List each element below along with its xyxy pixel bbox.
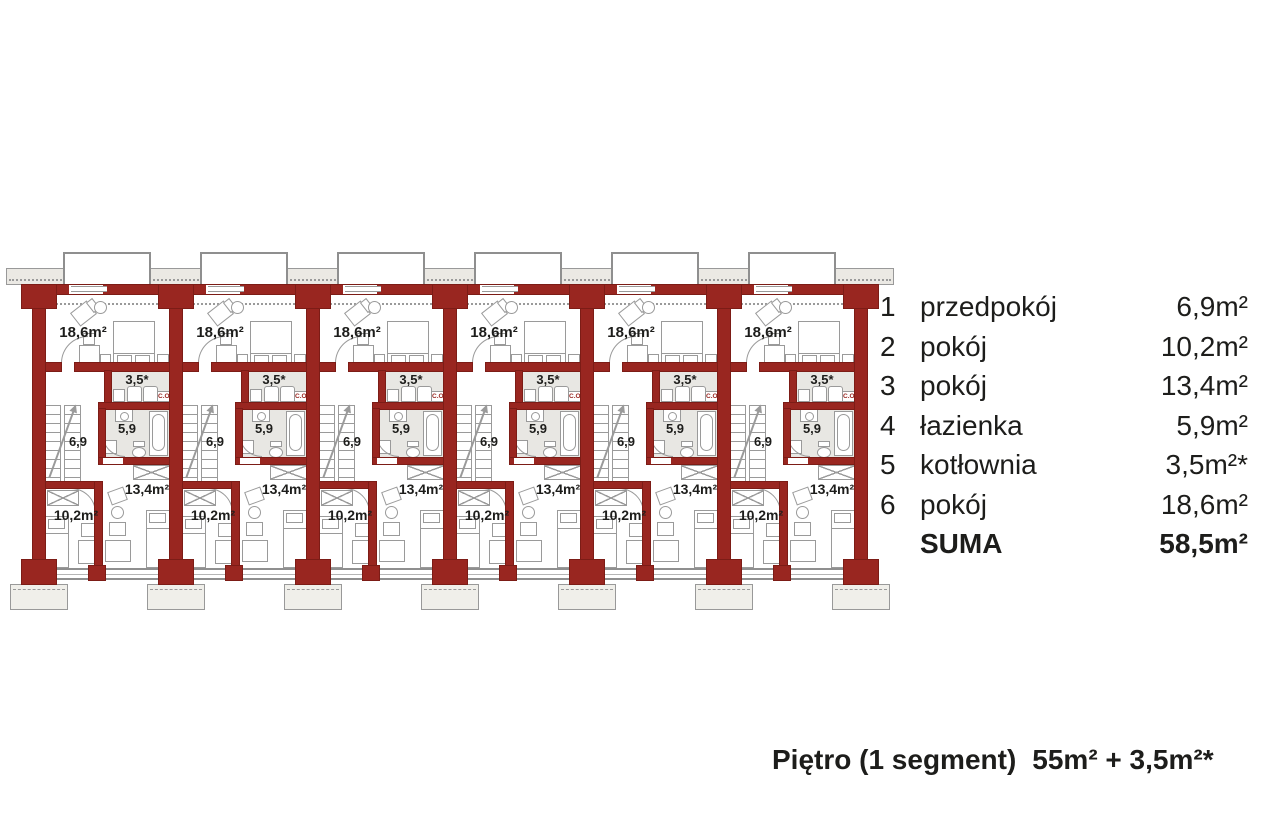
wardrobe [407, 465, 444, 480]
door-gap [103, 458, 123, 464]
chair [246, 522, 263, 536]
wall-top [319, 285, 444, 294]
bed-blanket-line [831, 528, 855, 529]
wall-top [730, 285, 855, 294]
washer [127, 386, 142, 402]
window-band [593, 568, 718, 580]
desk [516, 540, 542, 562]
boiler-fixture [661, 389, 673, 402]
wall-hall-bottom [730, 482, 782, 488]
roof-overhang-dotted-line [45, 303, 170, 305]
room-label-3-5: 3,5* [794, 373, 850, 386]
window-band [456, 568, 581, 580]
party-wall [718, 285, 730, 582]
toilet-bowl [406, 447, 420, 458]
wall-pilaster-bottom [570, 560, 604, 584]
toilet-bowl [269, 447, 283, 458]
room-label-6-9: 6,9 [63, 435, 93, 448]
stool-circle [385, 506, 398, 519]
wall-pier [226, 566, 242, 580]
wall-pilaster-top [22, 285, 56, 308]
bed-pillow [423, 513, 440, 523]
desk [105, 540, 131, 562]
stool-circle [111, 506, 124, 519]
chair-circle [505, 301, 518, 314]
wall-room-divider [349, 363, 444, 371]
wardrobe [595, 490, 627, 506]
wall-room-divider [623, 363, 718, 371]
washer [691, 386, 706, 402]
balcony [337, 252, 425, 286]
wall-hall-bottom [319, 482, 371, 488]
washer [264, 386, 279, 402]
legend-area: 10,2m² [1161, 331, 1248, 363]
floor-summary: Piętro (1 segment)55m² + 3,5m²* [772, 744, 1214, 776]
stool-circle [796, 506, 809, 519]
balcony-door-sill [482, 286, 518, 292]
wall-pilaster-top [296, 285, 330, 308]
room-label-3-5: 3,5* [520, 373, 576, 386]
wall-pilaster-top [570, 285, 604, 308]
legend-row: 6pokój18,6m² [880, 489, 1248, 529]
legend-name: pokój [920, 489, 1161, 521]
house-segment: 18,6m² 3,5* C.O. 5,9 [593, 237, 718, 612]
legend-num: 2 [880, 331, 920, 363]
wall-pier [363, 566, 379, 580]
desk [790, 540, 816, 562]
room-label-3-5: 3,5* [246, 373, 302, 386]
party-wall [581, 285, 593, 582]
chair-circle [368, 301, 381, 314]
washer [812, 386, 827, 402]
wall-partition [506, 482, 513, 568]
legend-row: 2pokój10,2m² [880, 331, 1248, 371]
co-boiler-label: C.O. [568, 391, 581, 402]
wall-stub [182, 363, 198, 371]
sink-bowl [531, 412, 540, 421]
washer [143, 386, 158, 402]
wall-pilaster-bottom [22, 560, 56, 584]
legend-num: 5 [880, 449, 920, 481]
party-wall [33, 285, 45, 582]
room-label-13-4: 13,4m² [535, 482, 581, 496]
boiler-fixture [113, 389, 125, 402]
desk [653, 540, 679, 562]
wardrobe [544, 465, 581, 480]
party-wall [855, 285, 867, 582]
wall-bath-top [99, 403, 170, 409]
wall-hall-bottom [593, 482, 645, 488]
balcony [63, 252, 151, 286]
stool-circle [248, 506, 261, 519]
toilet-bowl [680, 447, 694, 458]
sink-bowl [805, 412, 814, 421]
room-label-18-6: 18,6m² [462, 325, 526, 340]
wall-stub [730, 363, 746, 371]
washer [554, 386, 569, 402]
boiler-fixture [524, 389, 536, 402]
wall-bath-left [510, 409, 516, 458]
room-label-3-5: 3,5* [109, 373, 165, 386]
desk [379, 540, 405, 562]
legend-row: 1przedpokój6,9m² [880, 291, 1248, 331]
balcony [748, 252, 836, 286]
washer [538, 386, 553, 402]
house-segment: 18,6m² 3,5* C.O. 5,9 [45, 237, 170, 612]
floor-summary-value: 55m² + 3,5m²* [1032, 744, 1213, 775]
room-label-10-2: 10,2m² [462, 508, 512, 522]
bed-pillow [149, 513, 166, 523]
wall-bath-left [647, 409, 653, 458]
chair-circle [779, 301, 792, 314]
co-boiler-label: C.O. [294, 391, 307, 402]
wall-top [456, 285, 581, 294]
co-boiler-label: C.O. [705, 391, 718, 402]
roof-overhang-dotted-line [319, 303, 444, 305]
bed-blanket-line [593, 533, 617, 534]
legend-area: 13,4m² [1161, 370, 1248, 402]
washer [828, 386, 843, 402]
door-gap [651, 458, 671, 464]
wall-stub [45, 363, 61, 371]
sink-bowl [120, 412, 129, 421]
balcony [200, 252, 288, 286]
wall-pier [637, 566, 653, 580]
room-label-13-4: 13,4m² [672, 482, 718, 496]
chair [109, 522, 126, 536]
bathtub-inner [152, 414, 165, 451]
legend-row-suma: SUMA58,5m² [880, 528, 1248, 568]
legend-area: 58,5m² [1159, 528, 1248, 560]
room-label-10-2: 10,2m² [188, 508, 238, 522]
wall-bath-top [373, 403, 444, 409]
wall-room-divider [760, 363, 855, 371]
roof-overhang-dotted-line [593, 303, 718, 305]
window-band [730, 568, 855, 580]
washer [675, 386, 690, 402]
legend-name: łazienka [920, 410, 1176, 442]
room-label-10-2: 10,2m² [325, 508, 375, 522]
house-segment: 18,6m² 3,5* C.O. 5,9 [182, 237, 307, 612]
legend-num: 6 [880, 489, 920, 521]
wall-stub [593, 363, 609, 371]
room-legend: 1przedpokój6,9m² 2pokój10,2m² 3pokój13,4… [880, 291, 1248, 568]
room-label-3-5: 3,5* [657, 373, 713, 386]
window-band [182, 568, 307, 580]
door-gap [514, 458, 534, 464]
balcony-door-sill [208, 286, 244, 292]
wall-bath-top [510, 403, 581, 409]
washer [401, 386, 416, 402]
room-label-6-9: 6,9 [748, 435, 778, 448]
wall-pier [89, 566, 105, 580]
bed-blanket-line [420, 528, 444, 529]
bed-pillow [834, 513, 851, 523]
chair-circle [642, 301, 655, 314]
washer [280, 386, 295, 402]
bed-blanket-line [694, 528, 718, 529]
bathtub-inner [837, 414, 850, 451]
room-label-6-9: 6,9 [474, 435, 504, 448]
wardrobe [270, 465, 307, 480]
bed-blanket-line [319, 533, 343, 534]
wardrobe [681, 465, 718, 480]
wardrobe [818, 465, 855, 480]
wardrobe [133, 465, 170, 480]
co-boiler-label: C.O. [157, 391, 170, 402]
legend-name: pokój [920, 370, 1161, 402]
legend-name: SUMA [920, 528, 1159, 560]
bed-blanket-line [283, 528, 307, 529]
balcony-door-sill [345, 286, 381, 292]
legend-area: 5,9m² [1176, 410, 1248, 442]
legend-area: 18,6m² [1161, 489, 1248, 521]
legend-row: 3pokój13,4m² [880, 370, 1248, 410]
bed-blanket-line [456, 533, 480, 534]
wall-hall-bottom [456, 482, 508, 488]
chair [794, 522, 811, 536]
bed-blanket-line [798, 353, 840, 354]
bed-blanket-line [661, 353, 703, 354]
wall-bath-left [236, 409, 242, 458]
bed-blanket-line [730, 533, 754, 534]
wall-boiler-left [105, 371, 111, 403]
legend-row: 5kotłownia3,5m²* [880, 449, 1248, 489]
wall-pilaster-top [159, 285, 193, 308]
wall-top [182, 285, 307, 294]
desk [242, 540, 268, 562]
door-gap [240, 458, 260, 464]
window-band [45, 568, 170, 580]
wall-bath-left [373, 409, 379, 458]
boiler-fixture [250, 389, 262, 402]
chair-circle [231, 301, 244, 314]
wall-bath-left [784, 409, 790, 458]
wall-partition [95, 482, 102, 568]
wall-partition [780, 482, 787, 568]
bed-pillow [560, 513, 577, 523]
house-segment: 18,6m² 3,5* C.O. 5,9 [730, 237, 855, 612]
room-label-18-6: 18,6m² [51, 325, 115, 340]
wardrobe [47, 490, 79, 506]
sink-bowl [394, 412, 403, 421]
bed-blanket-line [387, 353, 429, 354]
balcony-door-sill [71, 286, 107, 292]
bed-blanket-line [113, 353, 155, 354]
room-label-18-6: 18,6m² [736, 325, 800, 340]
legend-num: 4 [880, 410, 920, 442]
legend-area: 6,9m² [1176, 291, 1248, 323]
toilet-bowl [817, 447, 831, 458]
house-segment: 18,6m² 3,5* C.O. 5,9 [319, 237, 444, 612]
stool-circle [522, 506, 535, 519]
door-gap [377, 458, 397, 464]
window-band [319, 568, 444, 580]
bed-blanket-line [146, 528, 170, 529]
wall-pilaster-bottom [707, 560, 741, 584]
house-segment: 18,6m² 3,5* C.O. 5,9 [456, 237, 581, 612]
balcony [474, 252, 562, 286]
bathtub-inner [426, 414, 439, 451]
wall-pilaster-bottom [296, 560, 330, 584]
room-label-10-2: 10,2m² [736, 508, 786, 522]
wall-pilaster-bottom [844, 560, 878, 584]
wall-boiler-left [516, 371, 522, 403]
balcony-door-sill [756, 286, 792, 292]
bed-blanket-line [557, 528, 581, 529]
bed-pillow [286, 513, 303, 523]
wall-partition [232, 482, 239, 568]
wall-top [593, 285, 718, 294]
wall-bath-top [236, 403, 307, 409]
wall-stub [456, 363, 472, 371]
room-label-10-2: 10,2m² [51, 508, 101, 522]
legend-name: pokój [920, 331, 1161, 363]
bathtub-inner [700, 414, 713, 451]
room-label-3-5: 3,5* [383, 373, 439, 386]
wall-hall-bottom [45, 482, 97, 488]
sink-bowl [257, 412, 266, 421]
room-label-6-9: 6,9 [200, 435, 230, 448]
toilet-bowl [132, 447, 146, 458]
wardrobe [458, 490, 490, 506]
wall-top [45, 285, 170, 294]
wall-pilaster-bottom [433, 560, 467, 584]
wall-room-divider [212, 363, 307, 371]
wall-pier [500, 566, 516, 580]
wall-pier [774, 566, 790, 580]
wall-bath-top [647, 403, 718, 409]
wardrobe [184, 490, 216, 506]
bed-blanket-line [250, 353, 292, 354]
wall-boiler-left [653, 371, 659, 403]
legend-num: 1 [880, 291, 920, 323]
legend-name: przedpokój [920, 291, 1176, 323]
legend-name: kotłownia [920, 449, 1166, 481]
floor-plan-page: 18,6m² 3,5* C.O. 5,9 [0, 0, 1280, 822]
room-label-10-2: 10,2m² [599, 508, 649, 522]
wall-room-divider [486, 363, 581, 371]
sink-bowl [668, 412, 677, 421]
room-label-6-9: 6,9 [337, 435, 367, 448]
room-label-13-4: 13,4m² [261, 482, 307, 496]
balcony-door-sill [619, 286, 655, 292]
room-label-13-4: 13,4m² [124, 482, 170, 496]
wall-pilaster-bottom [159, 560, 193, 584]
bathtub-inner [563, 414, 576, 451]
bed-blanket-line [45, 533, 69, 534]
toilet-bowl [543, 447, 557, 458]
wall-partition [643, 482, 650, 568]
boiler-fixture [798, 389, 810, 402]
door-gap [788, 458, 808, 464]
wall-bath-top [784, 403, 855, 409]
bed-blanket-line [182, 533, 206, 534]
room-label-6-9: 6,9 [611, 435, 641, 448]
room-label-18-6: 18,6m² [599, 325, 663, 340]
wall-boiler-left [242, 371, 248, 403]
floor-summary-label: Piętro (1 segment) [772, 744, 1016, 775]
stool-circle [659, 506, 672, 519]
bed-pillow [697, 513, 714, 523]
balcony [611, 252, 699, 286]
wall-room-divider [75, 363, 170, 371]
chair [383, 522, 400, 536]
wardrobe [732, 490, 764, 506]
room-label-13-4: 13,4m² [398, 482, 444, 496]
room-label-13-4: 13,4m² [809, 482, 855, 496]
bathtub-inner [289, 414, 302, 451]
washer [417, 386, 432, 402]
wall-stub [319, 363, 335, 371]
co-boiler-label: C.O. [842, 391, 855, 402]
legend-area: 3,5m²* [1166, 449, 1248, 481]
wall-boiler-left [790, 371, 796, 403]
party-wall [307, 285, 319, 582]
roof-overhang-dotted-line [182, 303, 307, 305]
roof-overhang-dotted-line [730, 303, 855, 305]
party-wall [170, 285, 182, 582]
chair-circle [94, 301, 107, 314]
wall-partition [369, 482, 376, 568]
wall-pilaster-top [707, 285, 741, 308]
wall-pilaster-top [844, 285, 878, 308]
roof-overhang-dotted-line [456, 303, 581, 305]
room-label-18-6: 18,6m² [325, 325, 389, 340]
chair [520, 522, 537, 536]
legend-num: 3 [880, 370, 920, 402]
wall-pilaster-top [433, 285, 467, 308]
wall-boiler-left [379, 371, 385, 403]
party-wall [444, 285, 456, 582]
wall-hall-bottom [182, 482, 234, 488]
wall-bath-left [99, 409, 105, 458]
boiler-fixture [387, 389, 399, 402]
legend-row: 4łazienka5,9m² [880, 410, 1248, 450]
chair [657, 522, 674, 536]
wardrobe [321, 490, 353, 506]
co-boiler-label: C.O. [431, 391, 444, 402]
bed-blanket-line [524, 353, 566, 354]
room-label-18-6: 18,6m² [188, 325, 252, 340]
